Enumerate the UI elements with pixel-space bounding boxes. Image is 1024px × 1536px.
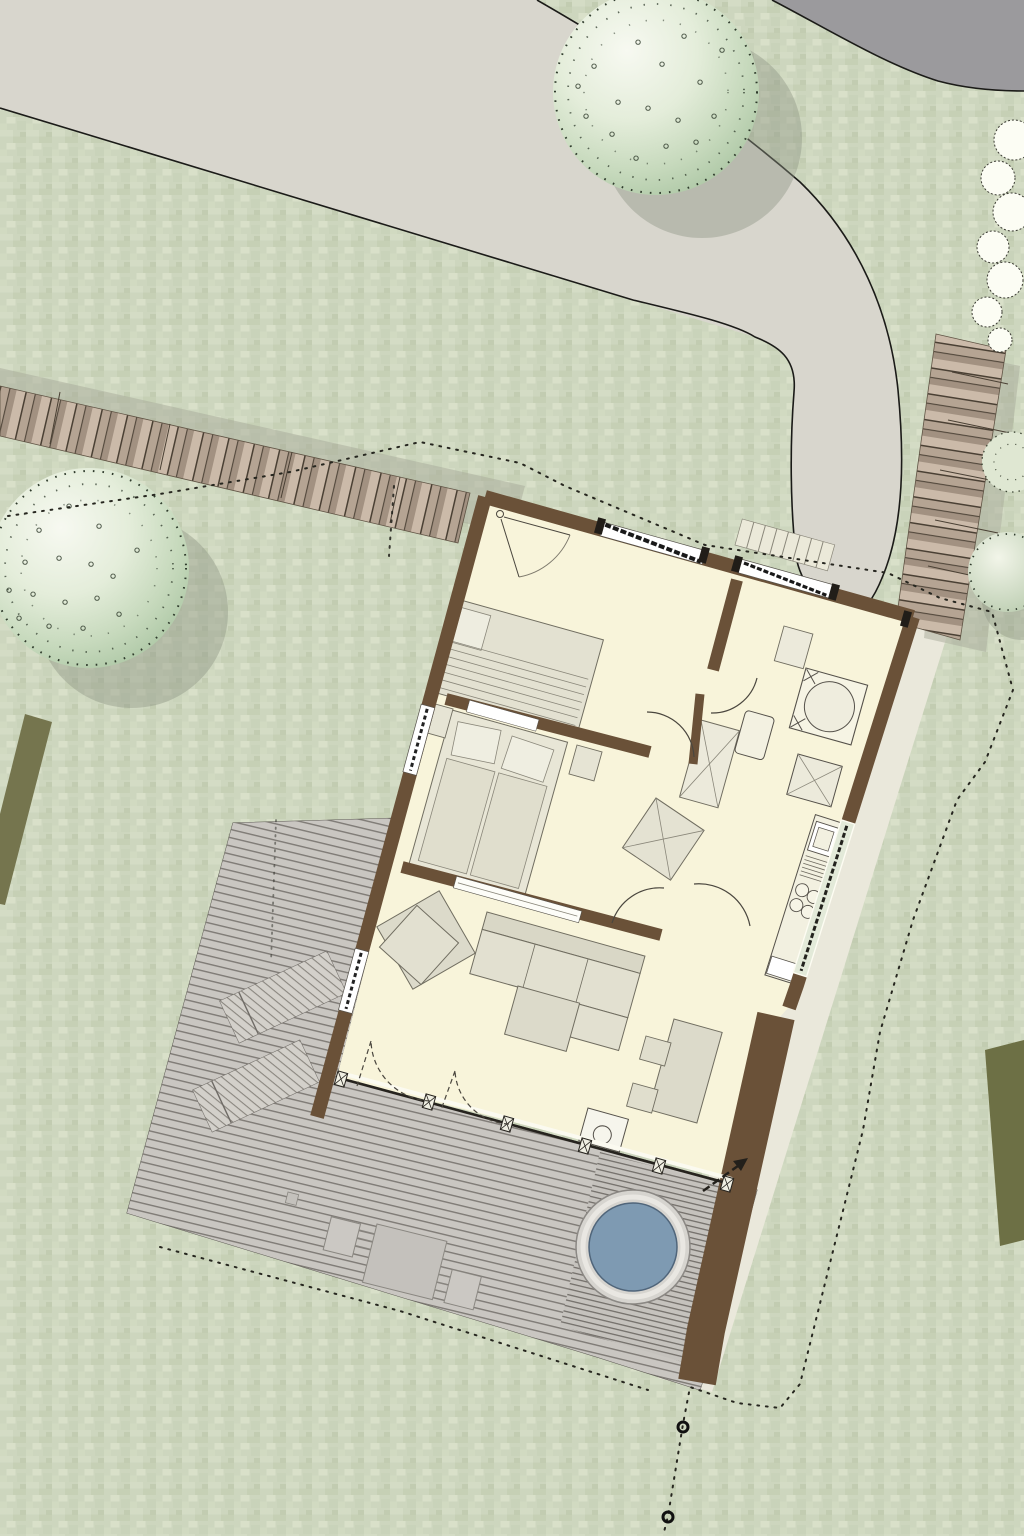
white-shrub xyxy=(987,262,1023,298)
site-plan-scene xyxy=(0,0,1024,1536)
white-shrub xyxy=(988,328,1012,352)
white-shrub xyxy=(972,297,1002,327)
hot-tub-water xyxy=(589,1203,677,1291)
small-box xyxy=(285,1192,298,1205)
deck-small-box xyxy=(285,1192,298,1205)
site-plan-canvas xyxy=(0,0,1024,1536)
site-plan-page xyxy=(0,0,1024,1536)
white-shrub xyxy=(977,231,1009,263)
white-shrub xyxy=(981,161,1015,195)
